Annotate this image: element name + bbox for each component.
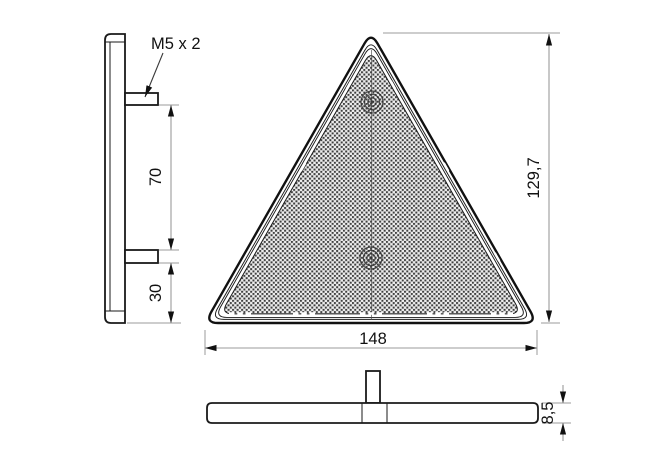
dim-stud-base-offset-label: 30: [147, 284, 165, 302]
dim-base-width-label: 148: [359, 330, 387, 348]
dim-stud-base-offset: 30: [127, 263, 181, 323]
upper-stud: [125, 93, 158, 105]
thread-callout-leader: [145, 53, 163, 97]
dim-overall-height-label: 129,7: [525, 157, 543, 198]
dim-stud-spacing: 70: [147, 105, 179, 250]
dim-stud-spacing-label: 70: [147, 168, 165, 186]
technical-drawing-canvas: M5 x 2 70 30: [0, 0, 661, 467]
thread-callout-label: M5 x 2: [151, 35, 201, 53]
dim-thickness-label: 8,5: [539, 402, 557, 425]
mounting-hole-bottom: [360, 247, 382, 269]
thread-callout: M5 x 2: [145, 35, 201, 97]
side-view-plate-outline: [105, 34, 125, 323]
bottom-view: [207, 371, 538, 423]
bottom-view-stud: [366, 371, 380, 403]
mounting-hole-top: [361, 91, 383, 113]
dim-base-width: 148: [205, 330, 537, 355]
front-view: [209, 38, 532, 323]
dim-thickness: 8,5: [539, 385, 571, 441]
drawing-svg: M5 x 2 70 30: [0, 0, 661, 467]
lower-stud: [125, 250, 158, 263]
bottom-view-plate-outline: [207, 403, 538, 423]
